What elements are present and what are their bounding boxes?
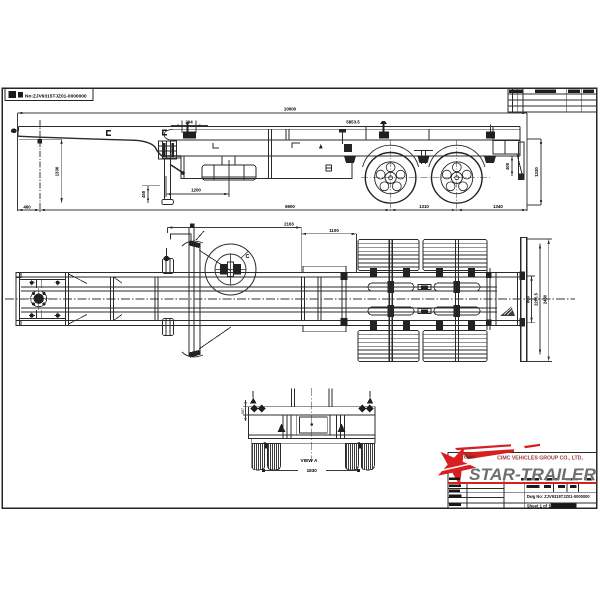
svg-text:460: 460 <box>23 204 31 209</box>
svg-text:Sheet 1 of 1: Sheet 1 of 1 <box>527 504 552 509</box>
svg-text:1310: 1310 <box>419 204 429 209</box>
svg-text:STAR-TRAILER: STAR-TRAILER <box>469 466 596 484</box>
svg-text:450: 450 <box>141 190 146 198</box>
svg-text:1200: 1200 <box>191 188 201 193</box>
svg-text:2260.5: 2260.5 <box>534 292 539 305</box>
svg-text:CIMC: CIMC <box>464 455 476 460</box>
svg-text:10000: 10000 <box>284 107 297 112</box>
svg-text:1330: 1330 <box>534 167 539 177</box>
svg-text:6900: 6900 <box>285 204 295 209</box>
svg-text:1100: 1100 <box>329 228 339 233</box>
svg-text:800: 800 <box>525 295 530 303</box>
svg-text:2480: 2480 <box>542 294 547 304</box>
svg-text:5853.5: 5853.5 <box>346 120 360 125</box>
svg-text:VIEW A: VIEW A <box>301 458 318 464</box>
svg-text:587: 587 <box>241 408 245 414</box>
svg-text:1340: 1340 <box>493 204 503 209</box>
svg-text:400: 400 <box>505 162 510 170</box>
svg-text:CIMC VEHICLES GROUP CO., LTD,: CIMC VEHICLES GROUP CO., LTD, <box>497 456 583 462</box>
svg-text:1330: 1330 <box>55 166 60 176</box>
svg-text:2163: 2163 <box>284 221 294 226</box>
svg-text:No:ZJV9315TJZ01-0000000: No:ZJV9315TJZ01-0000000 <box>25 93 87 99</box>
svg-text:Dwg No: ZJV9315TJZ01-0000000: Dwg No: ZJV9315TJZ01-0000000 <box>527 494 590 499</box>
svg-text:1830: 1830 <box>307 468 318 473</box>
svg-text:C: C <box>246 254 250 260</box>
